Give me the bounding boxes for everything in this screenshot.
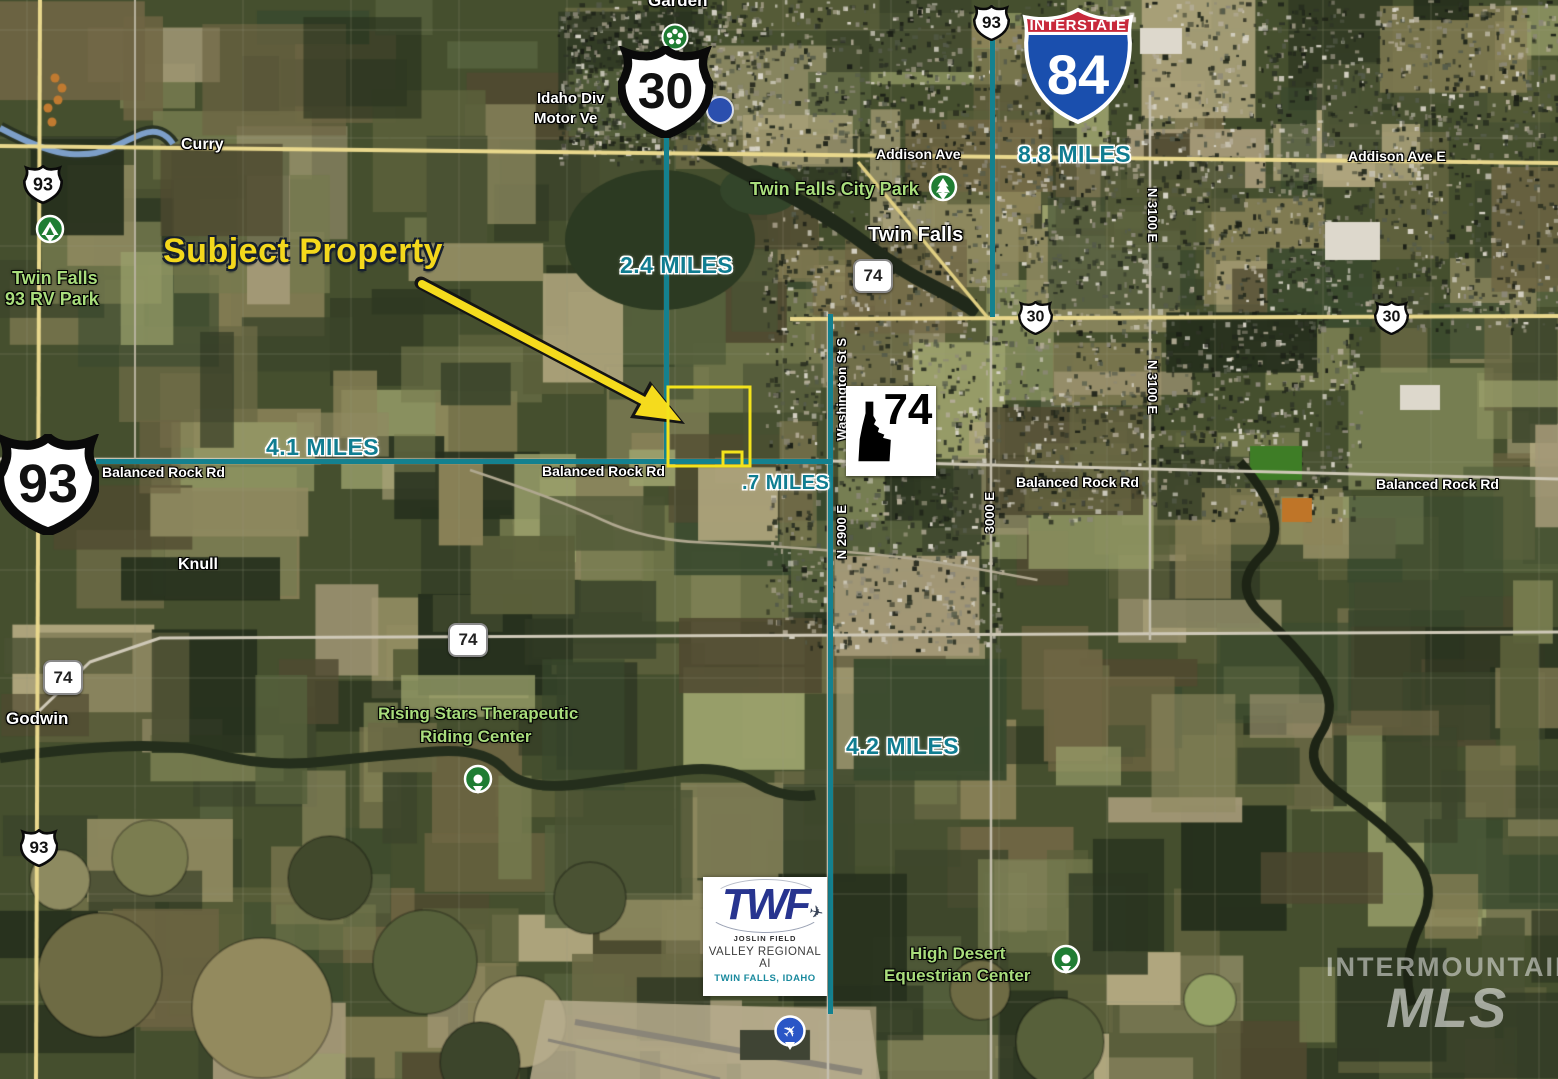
place-label-knull: Knull [178, 556, 218, 574]
us93-shield-sw: 93 [20, 829, 58, 867]
us30-shield-jct-a: 30 [1018, 301, 1053, 335]
road-label-3000e: 3000 E [982, 492, 997, 533]
sr74-marker-mid: 74 [448, 623, 488, 657]
mls-watermark-line2: MLS [1386, 975, 1507, 1040]
campground-pin-icon [34, 214, 66, 259]
place-label-curry: Curry [181, 136, 224, 154]
us93-shield-nw: 93 [23, 165, 63, 204]
airport-logo-name: VALLEY REGIONAL AI [703, 946, 827, 970]
road-label-balanced-rock-4: Balanced Rock Rd [1376, 476, 1499, 492]
road-label-balanced-rock-3: Balanced Rock Rd [1016, 474, 1139, 490]
measure-line-us30 [664, 137, 669, 462]
us30-shield-main: 30 [618, 46, 713, 138]
airport-plane-icon: ✈ [772, 1014, 808, 1059]
place-label-rising-stars-1: Rising Stars Therapeutic [378, 704, 578, 724]
place-label-dmv-1: Idaho Div [537, 90, 605, 107]
airport-logo-city: TWIN FALLS, IDAHO [703, 973, 827, 984]
distance-label-i84: 8.8 MILES [1018, 141, 1131, 168]
sr74-marker-sw: 74 [43, 660, 83, 695]
road-label-n3100e-2: N 3100 E [1145, 360, 1160, 414]
place-label-godwin: Godwin [6, 709, 68, 729]
us30-shield-jct-b: 30 [1374, 301, 1409, 335]
idaho-sr74-marker: 74 [846, 386, 936, 476]
airport-logo-field: JOSLIN FIELD [703, 934, 827, 943]
place-label-equestrian-2: Equestrian Center [884, 966, 1030, 986]
road-label-addison: Addison Ave [876, 146, 961, 162]
place-label-garden: Garden [648, 0, 708, 11]
place-label-equestrian-1: High Desert [910, 944, 1005, 964]
park-tree-pin-icon [927, 172, 959, 217]
place-label-rising-stars-2: Riding Center [420, 727, 531, 747]
place-label-twin-falls: Twin Falls [868, 224, 963, 247]
road-label-balanced-rock-1: Balanced Rock Rd [102, 464, 225, 480]
distance-label-us30: 2.4 MILES [620, 252, 733, 279]
us93-shield-main: 93 [0, 434, 99, 535]
road-label-n2900e: N 2900 E [834, 505, 849, 559]
i84-shield: INTERSTATE 84 [1016, 6, 1140, 126]
airport-logo: ✈ TWF JOSLIN FIELD VALLEY REGIONAL AI TW… [703, 877, 827, 996]
aerial-map: 2.4 MILES 8.8 MILES 4.1 MILES .7 MILES 4… [0, 0, 1558, 1079]
subject-property-label: Subject Property [163, 232, 443, 271]
us93-shield-top: 93 [973, 5, 1010, 41]
place-label-rv-park-1: Twin Falls [12, 268, 98, 289]
equestrian-pin-icon [1050, 944, 1082, 989]
place-label-city-park: Twin Falls City Park [750, 179, 919, 200]
rising-stars-pin-icon [462, 764, 494, 809]
road-label-addison-e: Addison Ave E [1348, 148, 1446, 164]
place-label-rv-park-2: 93 RV Park [5, 289, 99, 310]
measure-line-i84 [990, 39, 995, 317]
distance-label-washington: .7 MILES [742, 472, 829, 495]
place-label-dmv-2: Motor Ve [534, 110, 597, 127]
distance-label-airport: 4.2 MILES [846, 733, 959, 760]
road-label-balanced-rock-2: Balanced Rock Rd [542, 463, 665, 479]
distance-label-us93: 4.1 MILES [266, 434, 379, 461]
road-label-n3100e-1: N 3100 E [1145, 188, 1160, 242]
airport-logo-brand: TWF [703, 883, 827, 927]
measure-line-airport [828, 314, 833, 1014]
sr74-marker-city: 74 [853, 259, 893, 293]
